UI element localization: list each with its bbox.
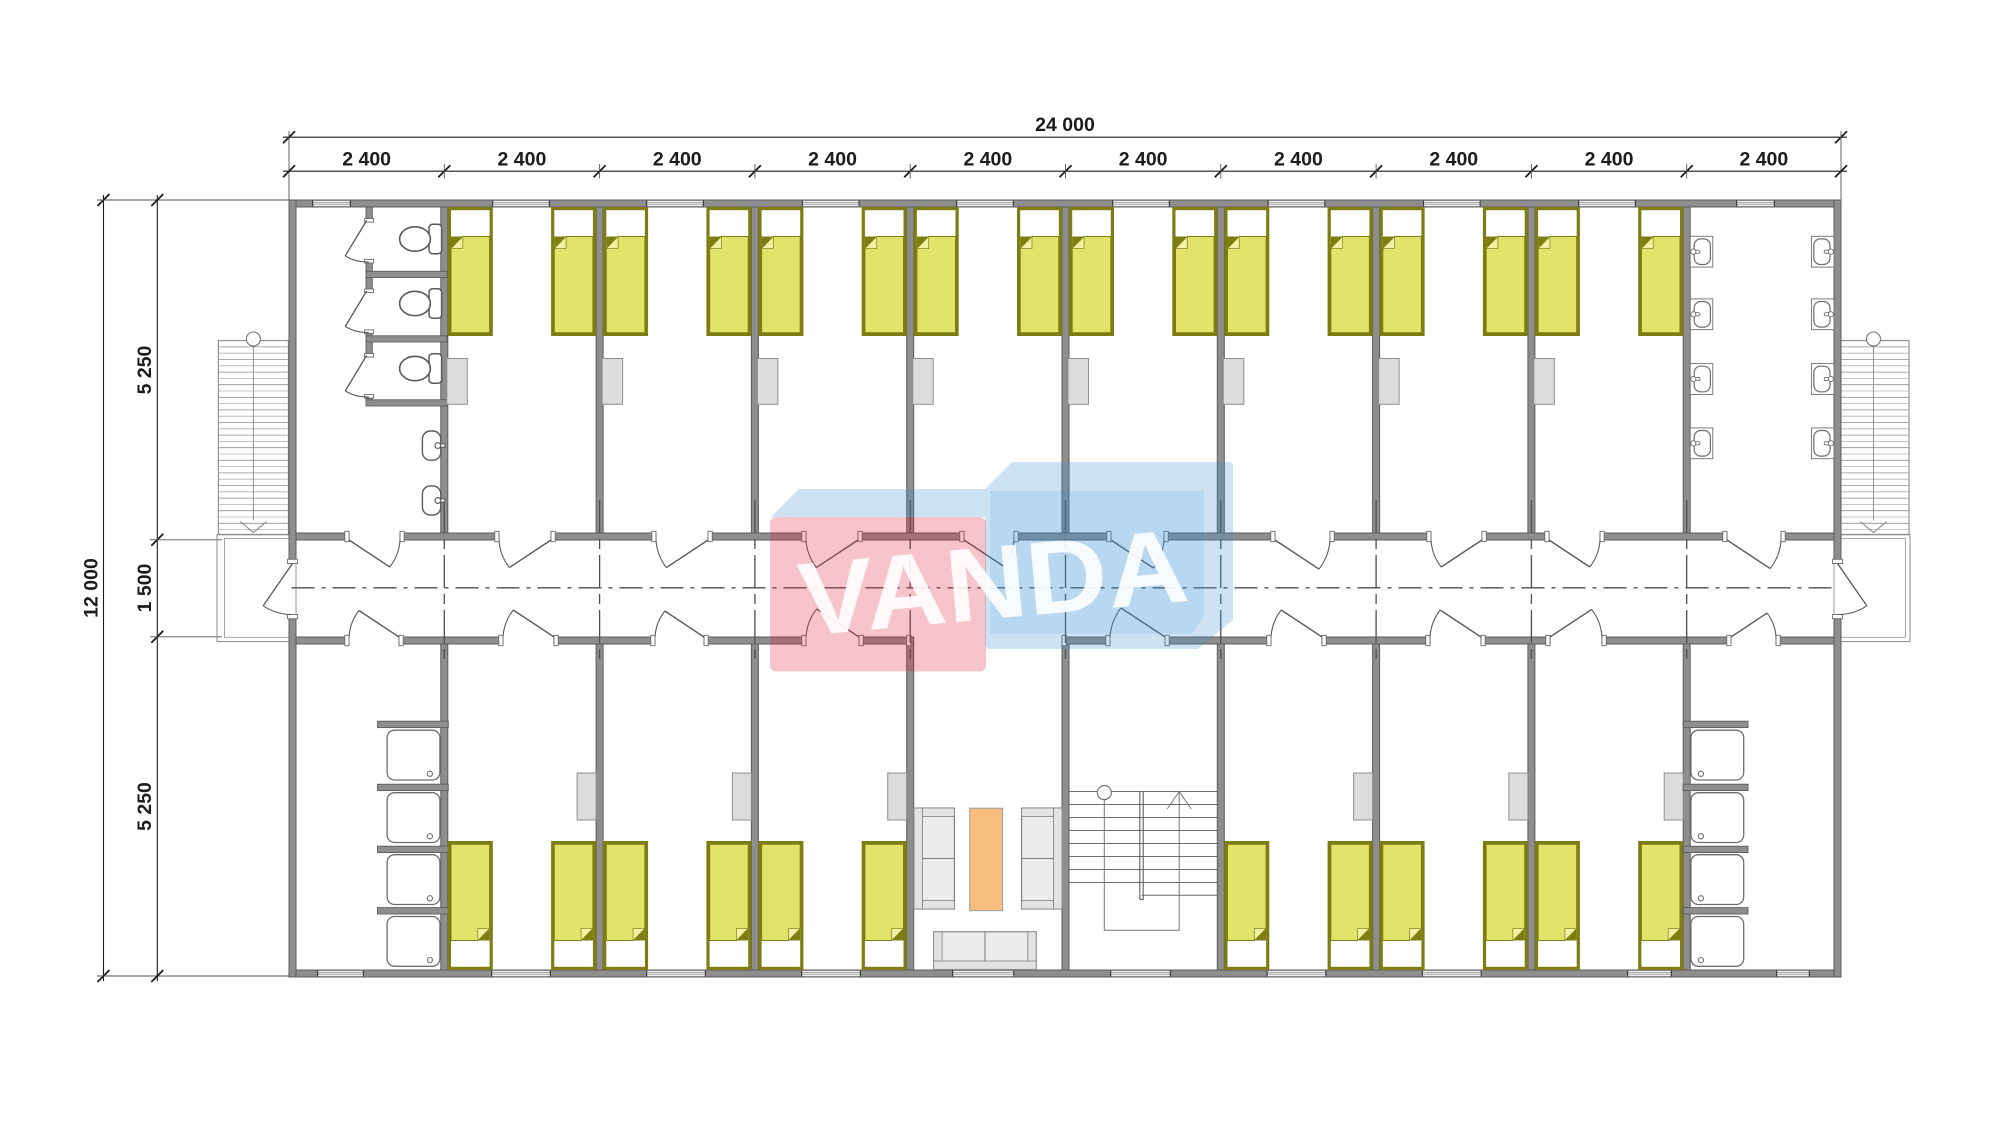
svg-text:2 400: 2 400: [1739, 149, 1788, 171]
svg-text:24 000: 24 000: [1035, 114, 1095, 136]
svg-text:2 400: 2 400: [498, 149, 547, 171]
svg-text:2 400: 2 400: [1274, 149, 1323, 171]
svg-text:2 400: 2 400: [342, 149, 391, 171]
svg-text:2 400: 2 400: [808, 149, 857, 171]
svg-text:2 400: 2 400: [1585, 149, 1634, 171]
svg-text:1 500: 1 500: [134, 563, 156, 612]
svg-text:2 400: 2 400: [963, 149, 1012, 171]
svg-text:5 250: 5 250: [134, 345, 156, 394]
svg-text:12 000: 12 000: [81, 558, 103, 618]
svg-text:2 400: 2 400: [653, 149, 702, 171]
svg-text:2 400: 2 400: [1429, 149, 1478, 171]
svg-text:2 400: 2 400: [1119, 149, 1168, 171]
svg-text:5 250: 5 250: [134, 782, 156, 831]
